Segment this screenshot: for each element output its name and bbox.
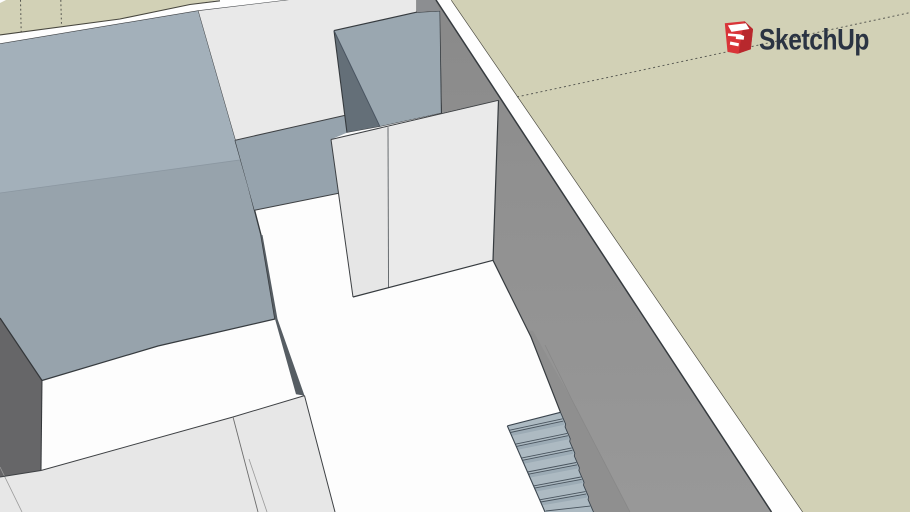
svg-text:SketchUp: SketchUp <box>759 23 869 56</box>
